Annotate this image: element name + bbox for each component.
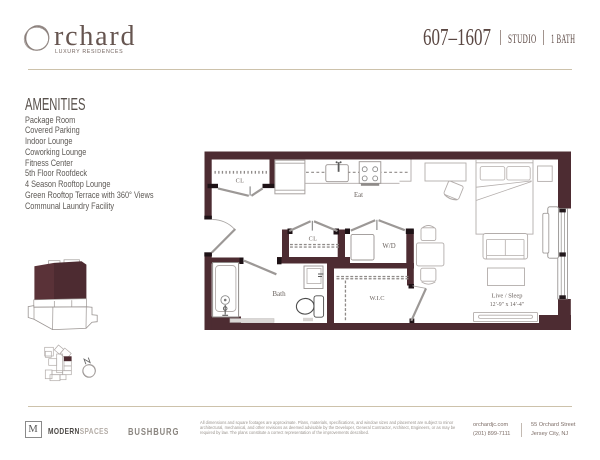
svg-text:W.I.C: W.I.C: [369, 295, 384, 302]
svg-text:Bath: Bath: [272, 290, 286, 298]
svg-text:W/D: W/D: [382, 243, 395, 250]
svg-text:Eat: Eat: [354, 192, 363, 199]
svg-text:12′-9″ x 14′-4″: 12′-9″ x 14′-4″: [490, 302, 525, 308]
svg-text:CL: CL: [309, 236, 318, 243]
svg-text:Live / Sleep: Live / Sleep: [492, 292, 523, 299]
svg-text:CL: CL: [236, 177, 245, 184]
